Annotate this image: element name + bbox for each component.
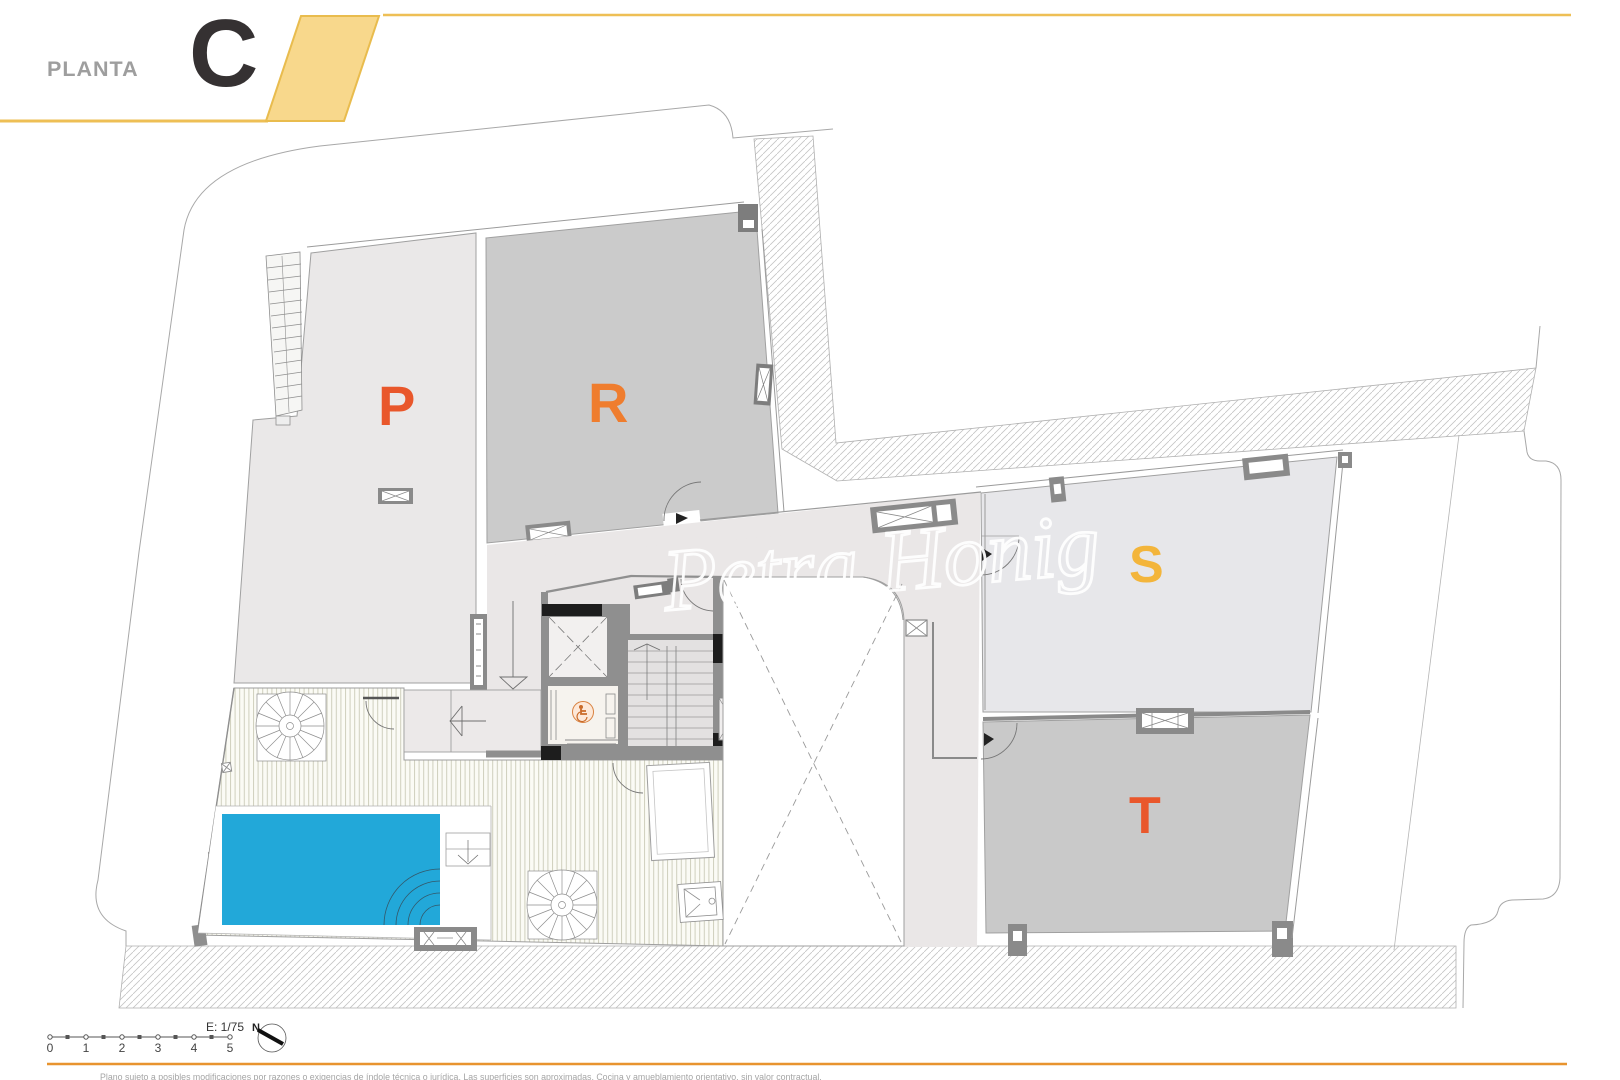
svg-text:2: 2	[119, 1041, 126, 1055]
svg-text:4: 4	[191, 1041, 198, 1055]
svg-text:5: 5	[227, 1041, 234, 1055]
svg-text:PLANTA: PLANTA	[47, 57, 139, 81]
svg-text:C: C	[189, 0, 258, 107]
svg-text:P: P	[378, 374, 415, 437]
svg-text:T: T	[1129, 787, 1161, 845]
svg-text:Plano sujeto a posibles modifi: Plano sujeto a posibles modificaciones p…	[100, 1072, 822, 1080]
svg-text:3: 3	[155, 1041, 162, 1055]
svg-text:0: 0	[47, 1041, 54, 1055]
svg-text:R: R	[588, 371, 628, 434]
svg-text:E: 1/75: E: 1/75	[206, 1020, 244, 1034]
svg-text:S: S	[1129, 536, 1164, 594]
svg-text:1: 1	[83, 1041, 90, 1055]
